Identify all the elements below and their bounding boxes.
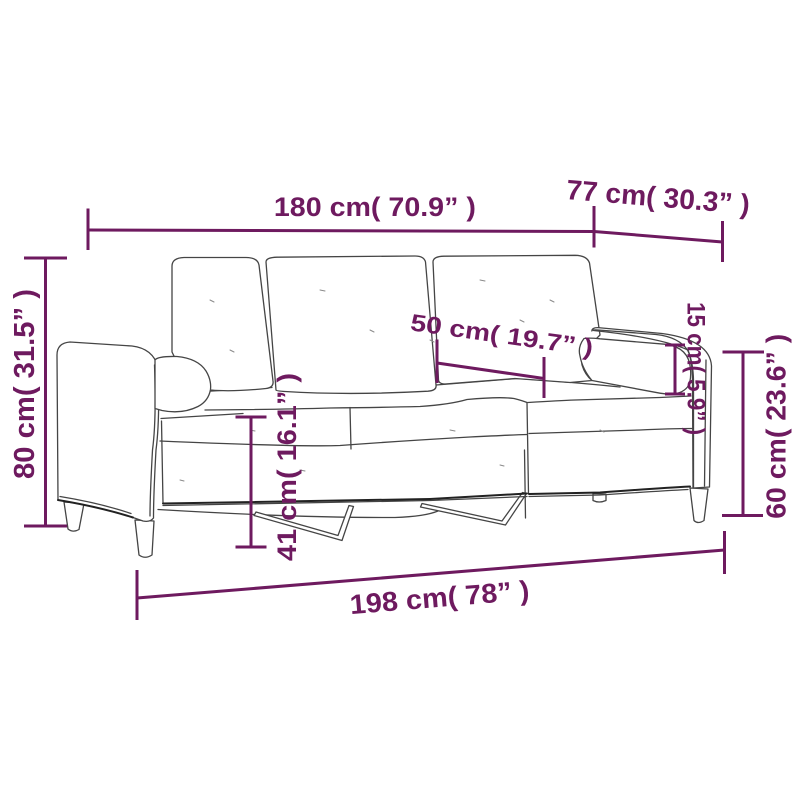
svg-text:41 cm( 16.1” ): 41 cm( 16.1” ) [272, 373, 302, 561]
svg-text:15 cm( 5.9” ): 15 cm( 5.9” ) [682, 302, 710, 435]
svg-text:60 cm( 23.6” ): 60 cm( 23.6” ) [761, 334, 792, 519]
svg-text:80 cm( 31.5” ): 80 cm( 31.5” ) [9, 289, 41, 479]
svg-text:180 cm( 70.9” ): 180 cm( 70.9” ) [274, 192, 476, 222]
